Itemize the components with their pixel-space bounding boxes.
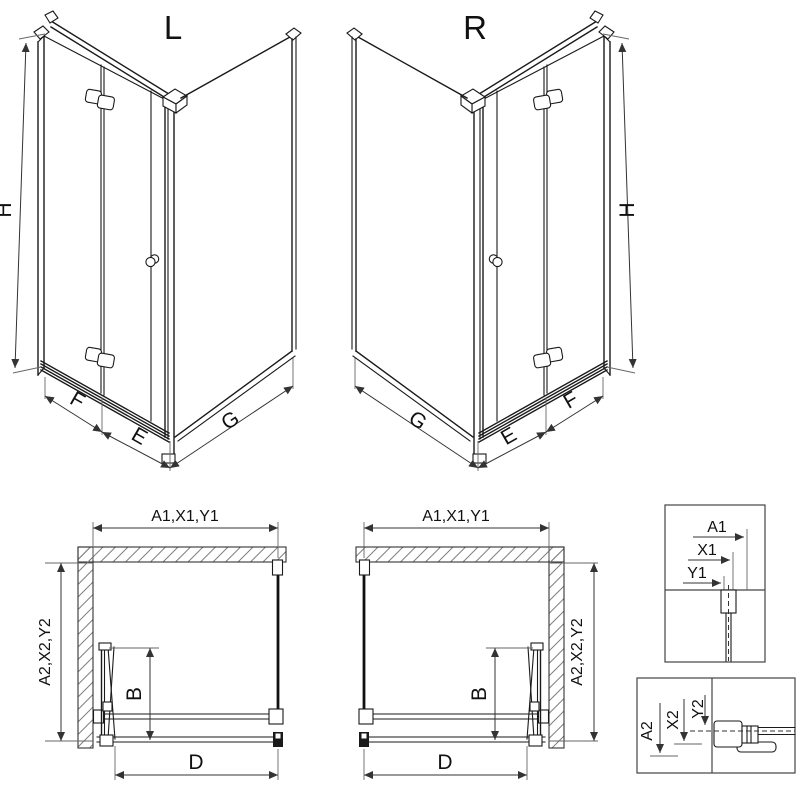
dim-label-y2-detail: Y2: [690, 699, 707, 719]
variant-label-left: L: [164, 9, 182, 46]
technical-drawing-page: L H F E G R H F E G A1,X1,Y1 A2,X2,Y2 B: [0, 0, 800, 800]
dim-label-x1-detail: X1: [697, 542, 717, 559]
plan-view-right: A1,X1,Y1 A2,X2,Y2 B D: [356, 508, 598, 780]
wall-hatch-top-right-plan: [356, 547, 564, 562]
dim-label-d-left-plan: D: [188, 751, 203, 774]
dim-label-a2x2y2-left-plan: A2,X2,Y2: [37, 618, 54, 686]
dim-label-g-left: G: [217, 407, 243, 435]
dim-label-a2-detail: A2: [639, 721, 656, 741]
dim-label-f-left: F: [66, 387, 89, 413]
dim-label-b-right-plan: B: [468, 687, 491, 701]
dim-label-a1x1y1-right-plan: A1,X1,Y1: [422, 508, 490, 525]
detail-box-depth-dims: A2 X2 Y2: [637, 678, 795, 773]
plan-view-left: A1,X1,Y1 A2,X2,Y2 B D: [37, 508, 286, 780]
dim-label-h-right: H: [616, 202, 639, 217]
dim-label-e-left: E: [127, 423, 151, 450]
wall-hatch-left: [78, 547, 93, 748]
dim-label-a2x2y2-right-plan: A2,X2,Y2: [569, 618, 586, 686]
dim-label-g-right: G: [404, 407, 430, 435]
dim-label-b-left-plan: B: [123, 687, 146, 701]
dim-label-f-right: F: [559, 387, 582, 413]
view-3d-right: R H F E G: [347, 9, 639, 471]
detail-box-width-dims: A1 X1 Y1: [665, 505, 765, 662]
dim-label-a1-detail: A1: [707, 519, 727, 536]
wall-hatch-right: [549, 547, 564, 748]
dim-label-e-right: E: [497, 423, 521, 450]
dim-label-d-right-plan: D: [437, 751, 452, 774]
wall-profile-section-2: [714, 721, 742, 747]
dim-label-a1x1y1-left-plan: A1,X1,Y1: [151, 508, 219, 525]
shower-enclosure-diagram: L H F E G R H F E G A1,X1,Y1 A2,X2,Y2 B: [0, 0, 800, 800]
dim-label-x2-detail: X2: [665, 710, 682, 730]
view-3d-left: L H F E G: [0, 9, 301, 471]
wall-hatch-top: [78, 547, 286, 562]
dim-label-h-left: H: [0, 202, 16, 217]
dim-label-y1-detail: Y1: [687, 565, 707, 582]
variant-label-right: R: [463, 9, 487, 46]
